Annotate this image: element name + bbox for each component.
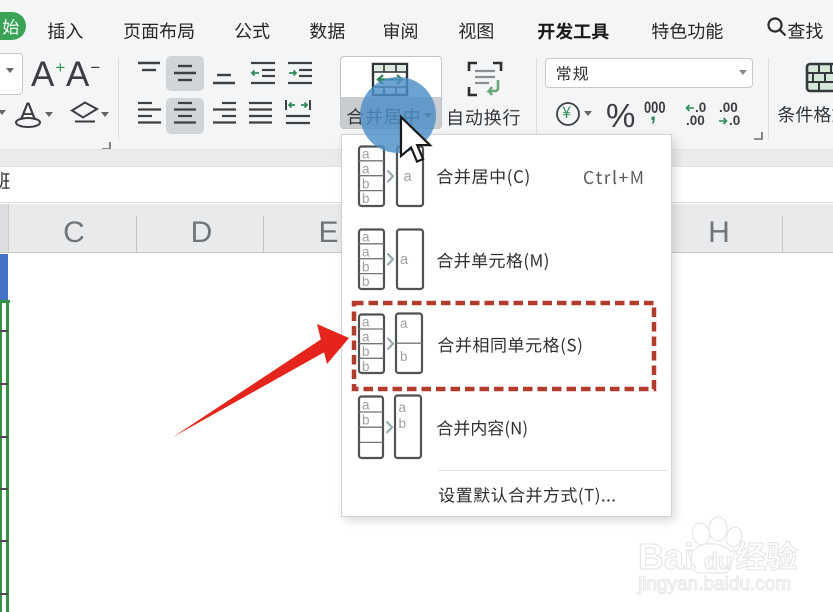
- svg-text:a: a: [400, 316, 408, 331]
- svg-text:a: a: [362, 245, 370, 260]
- svg-text:b: b: [362, 344, 370, 359]
- svg-text:a: a: [362, 315, 370, 330]
- svg-text:Bai: Bai: [638, 536, 694, 577]
- svg-text:a: a: [400, 252, 409, 268]
- svg-text:A: A: [20, 98, 37, 126]
- svg-text:a: a: [362, 398, 370, 413]
- svg-text:a: a: [362, 147, 370, 162]
- svg-text:b: b: [362, 191, 370, 206]
- svg-text:b: b: [362, 359, 370, 374]
- svg-text:b: b: [362, 176, 370, 191]
- svg-text:b: b: [400, 349, 408, 364]
- svg-text:b: b: [399, 416, 407, 431]
- svg-text:a: a: [399, 400, 407, 415]
- svg-text:a: a: [404, 169, 413, 185]
- svg-text:b: b: [362, 413, 370, 428]
- svg-text:a: a: [362, 162, 370, 177]
- svg-text:a: a: [362, 230, 370, 245]
- svg-text:jingyan.baidu.com: jingyan.baidu.com: [637, 574, 791, 595]
- svg-text:du: du: [704, 548, 732, 574]
- svg-text:a: a: [362, 329, 370, 344]
- svg-text:b: b: [362, 274, 370, 289]
- svg-text:b: b: [362, 259, 370, 274]
